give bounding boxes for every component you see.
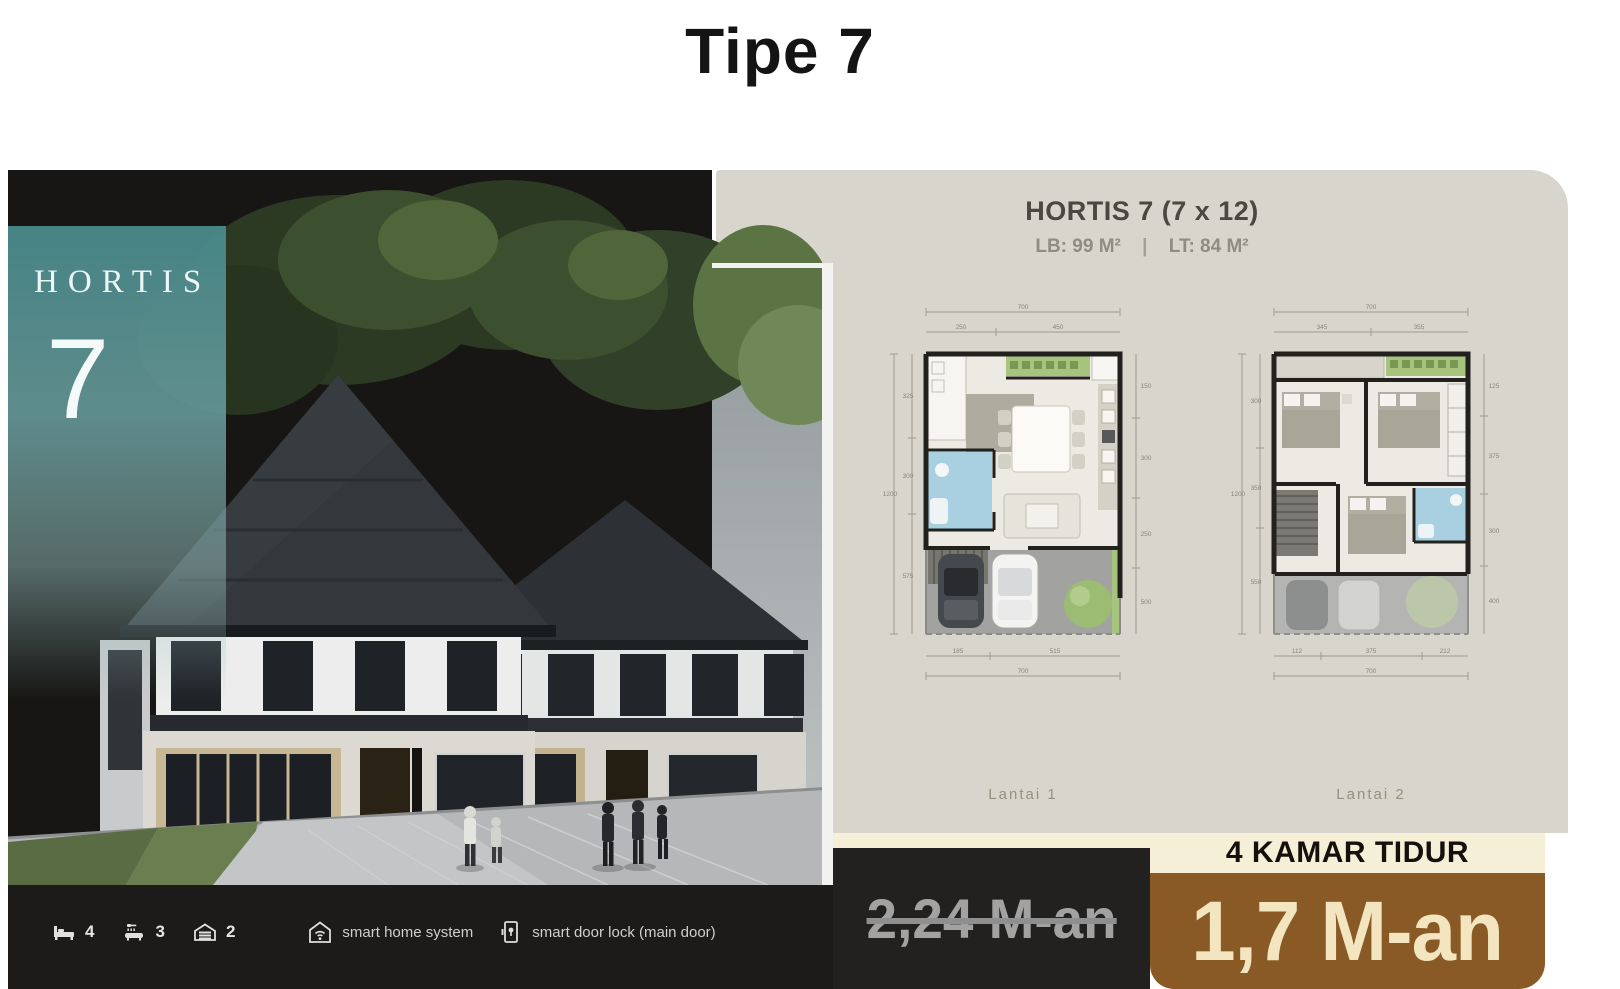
floor-plan-lantai-2: 700 345 355 1200 300 350 550 125 375 300… bbox=[1226, 298, 1516, 698]
svg-text:350: 350 bbox=[1251, 485, 1262, 492]
floorplan-areas: LB: 99 M² | LT: 84 M² bbox=[716, 236, 1568, 258]
floor-plan-lantai-1: 700 250 450 1200 325 300 575 150 300 250… bbox=[878, 298, 1168, 698]
old-price-box: 2,24 M-an bbox=[833, 848, 1150, 989]
svg-text:500: 500 bbox=[1141, 599, 1152, 606]
svg-text:325: 325 bbox=[903, 393, 914, 400]
svg-text:575: 575 bbox=[903, 573, 914, 580]
svg-text:400: 400 bbox=[1489, 598, 1500, 605]
svg-text:700: 700 bbox=[1366, 668, 1377, 675]
svg-text:300: 300 bbox=[903, 473, 914, 480]
floorplan-header: HORTIS 7 (7 x 12) LB: 99 M² | LT: 84 M² bbox=[716, 196, 1568, 258]
svg-text:300: 300 bbox=[1489, 528, 1500, 535]
new-price-box: 1,7 M-an bbox=[1150, 873, 1545, 989]
floor-plan-lantai-1-drawing: 700 250 450 1200 325 300 575 150 300 250… bbox=[878, 298, 1168, 698]
amenity-bedrooms: 4 bbox=[52, 922, 94, 942]
floor-plan-lantai-2-drawing: 700 345 355 1200 300 350 550 125 375 300… bbox=[1226, 298, 1516, 698]
svg-text:355: 355 bbox=[1414, 324, 1425, 331]
brand-overlay: HORTIS 7 bbox=[8, 226, 226, 700]
plan-label-lantai-1: Lantai 1 bbox=[878, 786, 1168, 803]
carport-count: 2 bbox=[226, 922, 235, 942]
svg-text:375: 375 bbox=[1366, 648, 1377, 655]
smart-door-lock-icon bbox=[499, 920, 523, 944]
smart-home-icon bbox=[307, 920, 333, 944]
bedrooms-banner: 4 KAMAR TIDUR bbox=[1150, 833, 1545, 873]
svg-text:250: 250 bbox=[956, 324, 967, 331]
bedroom-count: 4 bbox=[85, 922, 94, 942]
area-separator: | bbox=[1142, 236, 1147, 257]
floorplan-title: HORTIS 7 (7 x 12) bbox=[716, 196, 1568, 227]
amenity-bathrooms: 3 bbox=[122, 922, 164, 942]
land-area: LT: 84 M² bbox=[1169, 236, 1249, 257]
svg-text:300: 300 bbox=[1251, 398, 1262, 405]
svg-text:250: 250 bbox=[1141, 531, 1152, 538]
svg-text:700: 700 bbox=[1018, 668, 1029, 675]
svg-text:700: 700 bbox=[1366, 304, 1377, 311]
svg-text:700: 700 bbox=[1018, 304, 1029, 311]
smart-door-lock-label: smart door lock (main door) bbox=[532, 924, 715, 941]
brand-name: HORTIS bbox=[34, 264, 226, 301]
svg-text:300: 300 bbox=[1141, 455, 1152, 462]
shower-icon bbox=[122, 922, 146, 942]
garage-icon bbox=[193, 922, 217, 942]
bed-icon bbox=[52, 922, 76, 942]
svg-text:375: 375 bbox=[1489, 453, 1500, 460]
svg-text:212: 212 bbox=[1440, 648, 1451, 655]
svg-text:345: 345 bbox=[1317, 324, 1328, 331]
new-price: 1,7 M-an bbox=[1192, 883, 1504, 980]
svg-text:515: 515 bbox=[1050, 648, 1061, 655]
svg-text:1200: 1200 bbox=[883, 491, 898, 498]
svg-text:550: 550 bbox=[1251, 579, 1262, 586]
plan-label-lantai-2: Lantai 2 bbox=[1226, 786, 1516, 803]
amenity-carport: 2 bbox=[193, 922, 235, 942]
page-title: Tipe 7 bbox=[0, 14, 1560, 88]
house-render-photo: HORTIS 7 bbox=[8, 170, 833, 885]
old-price: 2,24 M-an bbox=[866, 886, 1116, 951]
feature-smart-home: smart home system bbox=[307, 920, 473, 944]
svg-text:450: 450 bbox=[1053, 324, 1064, 331]
svg-text:112: 112 bbox=[1292, 648, 1303, 655]
svg-text:125: 125 bbox=[1489, 383, 1500, 390]
feature-smart-door-lock: smart door lock (main door) bbox=[499, 920, 715, 944]
amenities-row: 4 3 2 bbox=[52, 906, 772, 958]
svg-text:150: 150 bbox=[1141, 383, 1152, 390]
flyer-page: Tipe 7 bbox=[0, 0, 1620, 989]
brand-unit-number: 7 bbox=[46, 329, 226, 432]
smart-home-label: smart home system bbox=[342, 924, 473, 941]
svg-text:1200: 1200 bbox=[1231, 491, 1246, 498]
building-area: LB: 99 M² bbox=[1035, 236, 1121, 257]
svg-text:185: 185 bbox=[953, 648, 964, 655]
bathroom-count: 3 bbox=[155, 922, 164, 942]
